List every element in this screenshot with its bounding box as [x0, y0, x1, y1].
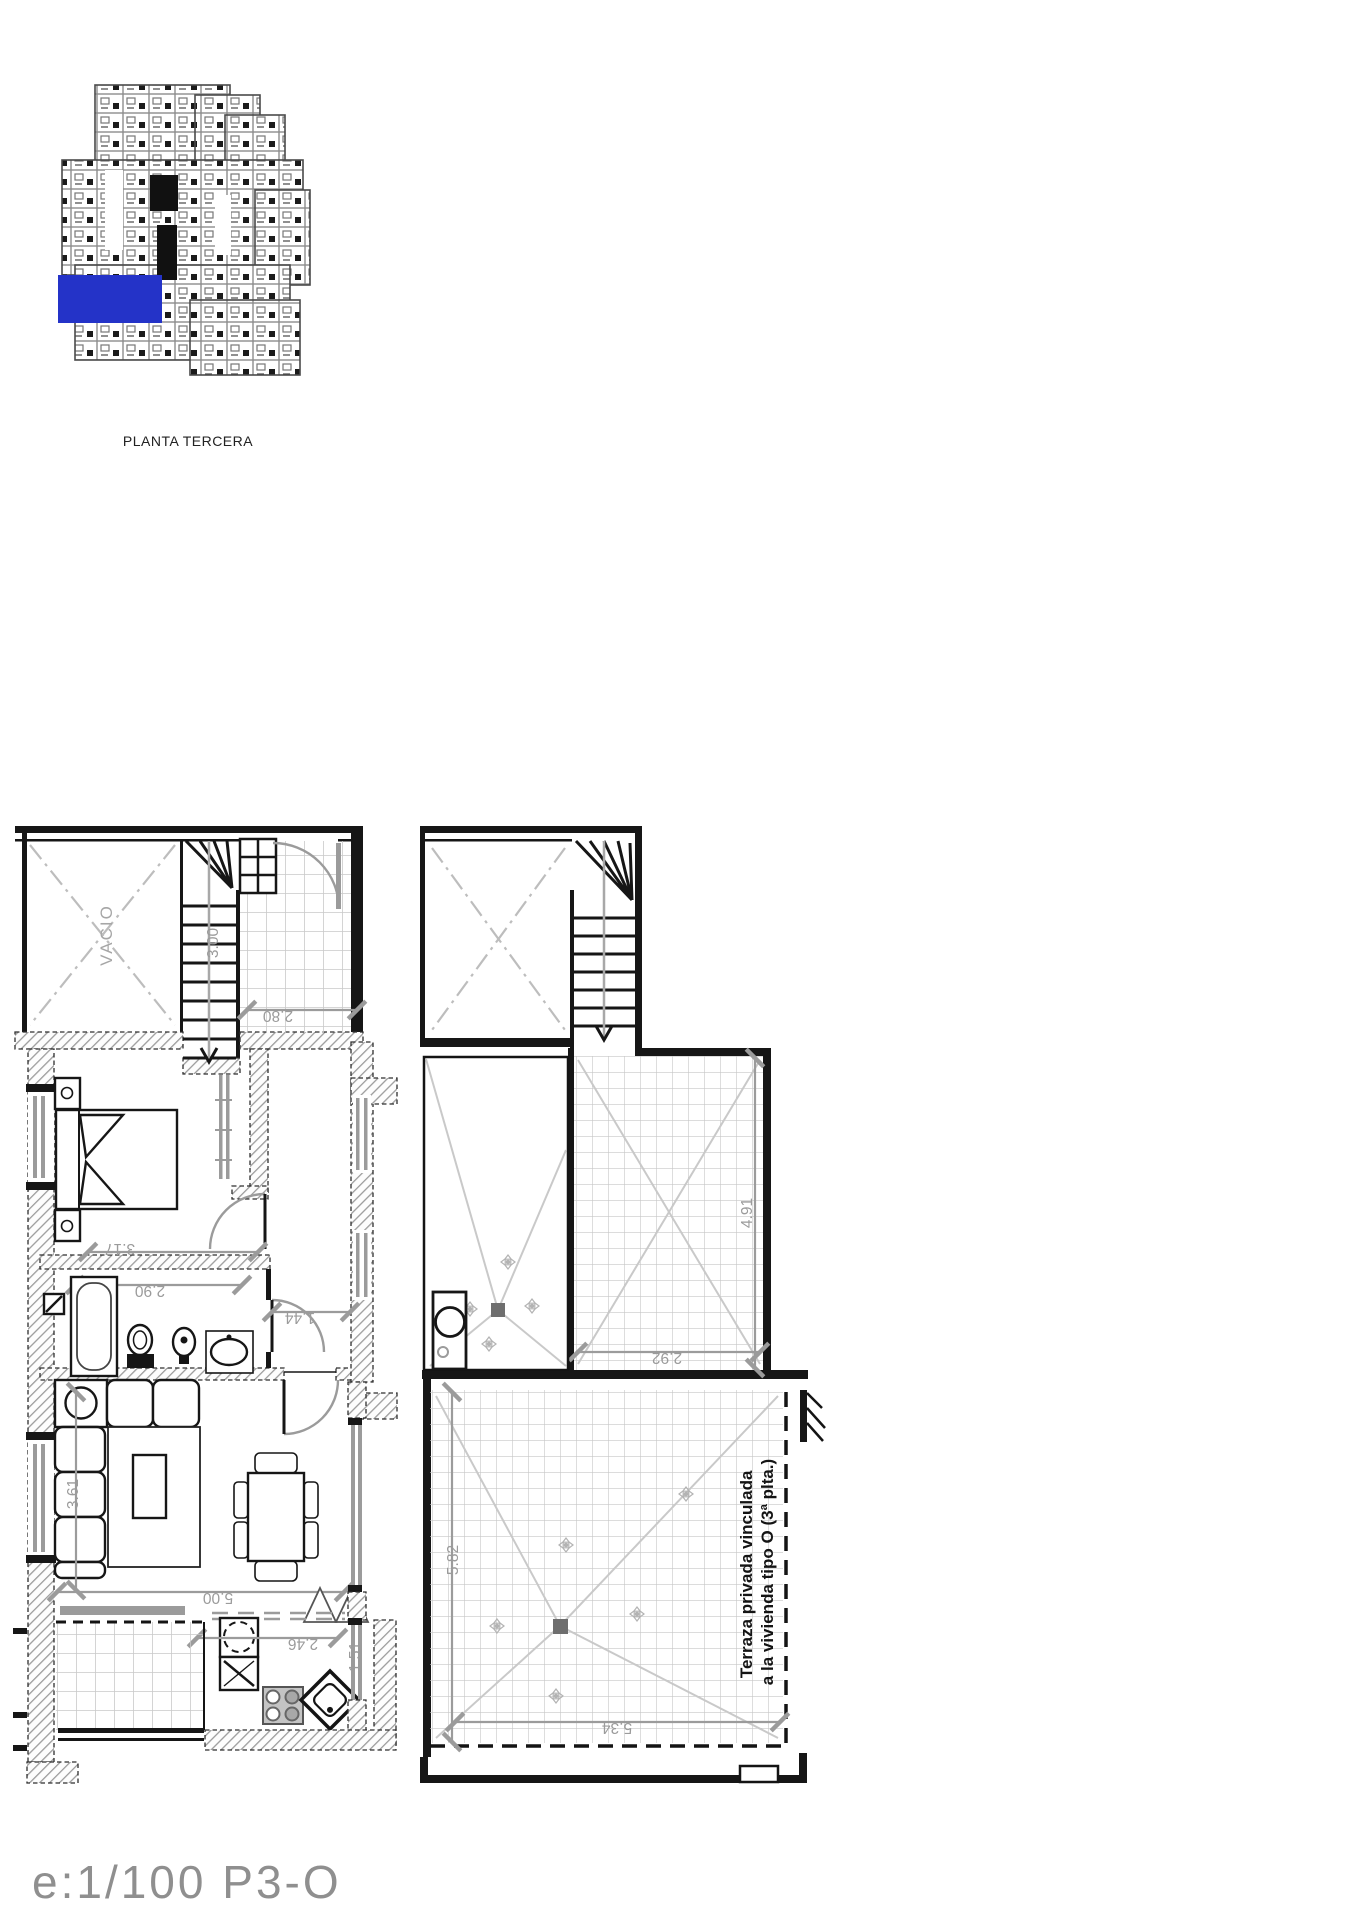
scale-label: e:1/100 P3-O	[32, 1856, 342, 1908]
side-table-symbol	[55, 1380, 107, 1427]
dim-corridor-width: 1.44	[285, 1309, 316, 1326]
upper-terrace: 4.91 2.92	[574, 1056, 763, 1370]
staircase-left: 3.00	[183, 841, 236, 1062]
lower-terrace: 5.82 5.34 Terraza privada vinculada a la…	[420, 1390, 825, 1783]
dim-living-depth: 3.61	[65, 1479, 82, 1509]
upper-void-room	[432, 848, 565, 1030]
sink-symbol	[206, 1331, 253, 1373]
drain-symbol	[491, 1303, 505, 1317]
room-void: VACIO	[30, 845, 175, 1025]
dim-stair-run: 3.00	[205, 928, 222, 959]
bath-fixture	[44, 1294, 64, 1314]
key-plan-building	[62, 85, 310, 375]
dim-living-width: 5.00	[203, 1589, 234, 1606]
bidet-symbol	[173, 1328, 195, 1364]
stair-landing	[240, 839, 276, 893]
key-plan-core	[157, 225, 177, 280]
bedroom: 3.17	[26, 1049, 268, 1257]
chimney-symbol	[433, 1292, 466, 1369]
key-plan: PLANTA TERCERA	[58, 85, 310, 449]
bathtub-symbol	[71, 1277, 117, 1376]
bed-symbol	[55, 1078, 177, 1241]
key-plan-label: PLANTA TERCERA	[123, 433, 253, 449]
entry-hall: 2.80	[240, 839, 357, 1033]
staircase-right	[570, 841, 635, 1048]
living-room: 5.00 3.61	[26, 1380, 344, 1606]
dining-set-symbol	[234, 1453, 318, 1581]
toilet-symbol	[127, 1325, 154, 1368]
drain-symbol	[553, 1619, 568, 1634]
dim-bedroom-width: 3.17	[105, 1240, 135, 1257]
bedroom-door-arc	[210, 1194, 265, 1249]
dim-entry-hall-width: 2.80	[263, 1007, 294, 1024]
dim-upper-terrace-width: 2.92	[652, 1349, 682, 1366]
dim-kitchen-width: 2.46	[288, 1635, 318, 1652]
dim-bathroom-width: 2.90	[135, 1282, 166, 1299]
key-plan-highlight	[58, 275, 162, 323]
bathroom: 2.90	[44, 1277, 324, 1376]
key-plan-core	[150, 175, 178, 211]
coffee-table-symbol	[133, 1455, 166, 1518]
dim-lower-terrace-depth: 5.82	[445, 1545, 462, 1575]
apartment-plan: VACIO 3.00 2.80	[13, 826, 397, 1783]
living-door-arc	[284, 1380, 338, 1434]
dim-upper-terrace-depth: 4.91	[739, 1198, 756, 1228]
dim-lower-terrace-width: 5.34	[602, 1719, 633, 1736]
room-label-vacio: VACIO	[97, 904, 116, 966]
floor-plan-sheet: PLANTA TERCERA	[0, 0, 1357, 1920]
terrace-plan: 4.91 2.92	[420, 826, 825, 1783]
dim-kitchen-window: 1.51	[347, 1642, 364, 1672]
washer-symbol	[220, 1657, 258, 1690]
drain-room	[424, 1057, 568, 1370]
stove-symbol	[263, 1687, 303, 1724]
